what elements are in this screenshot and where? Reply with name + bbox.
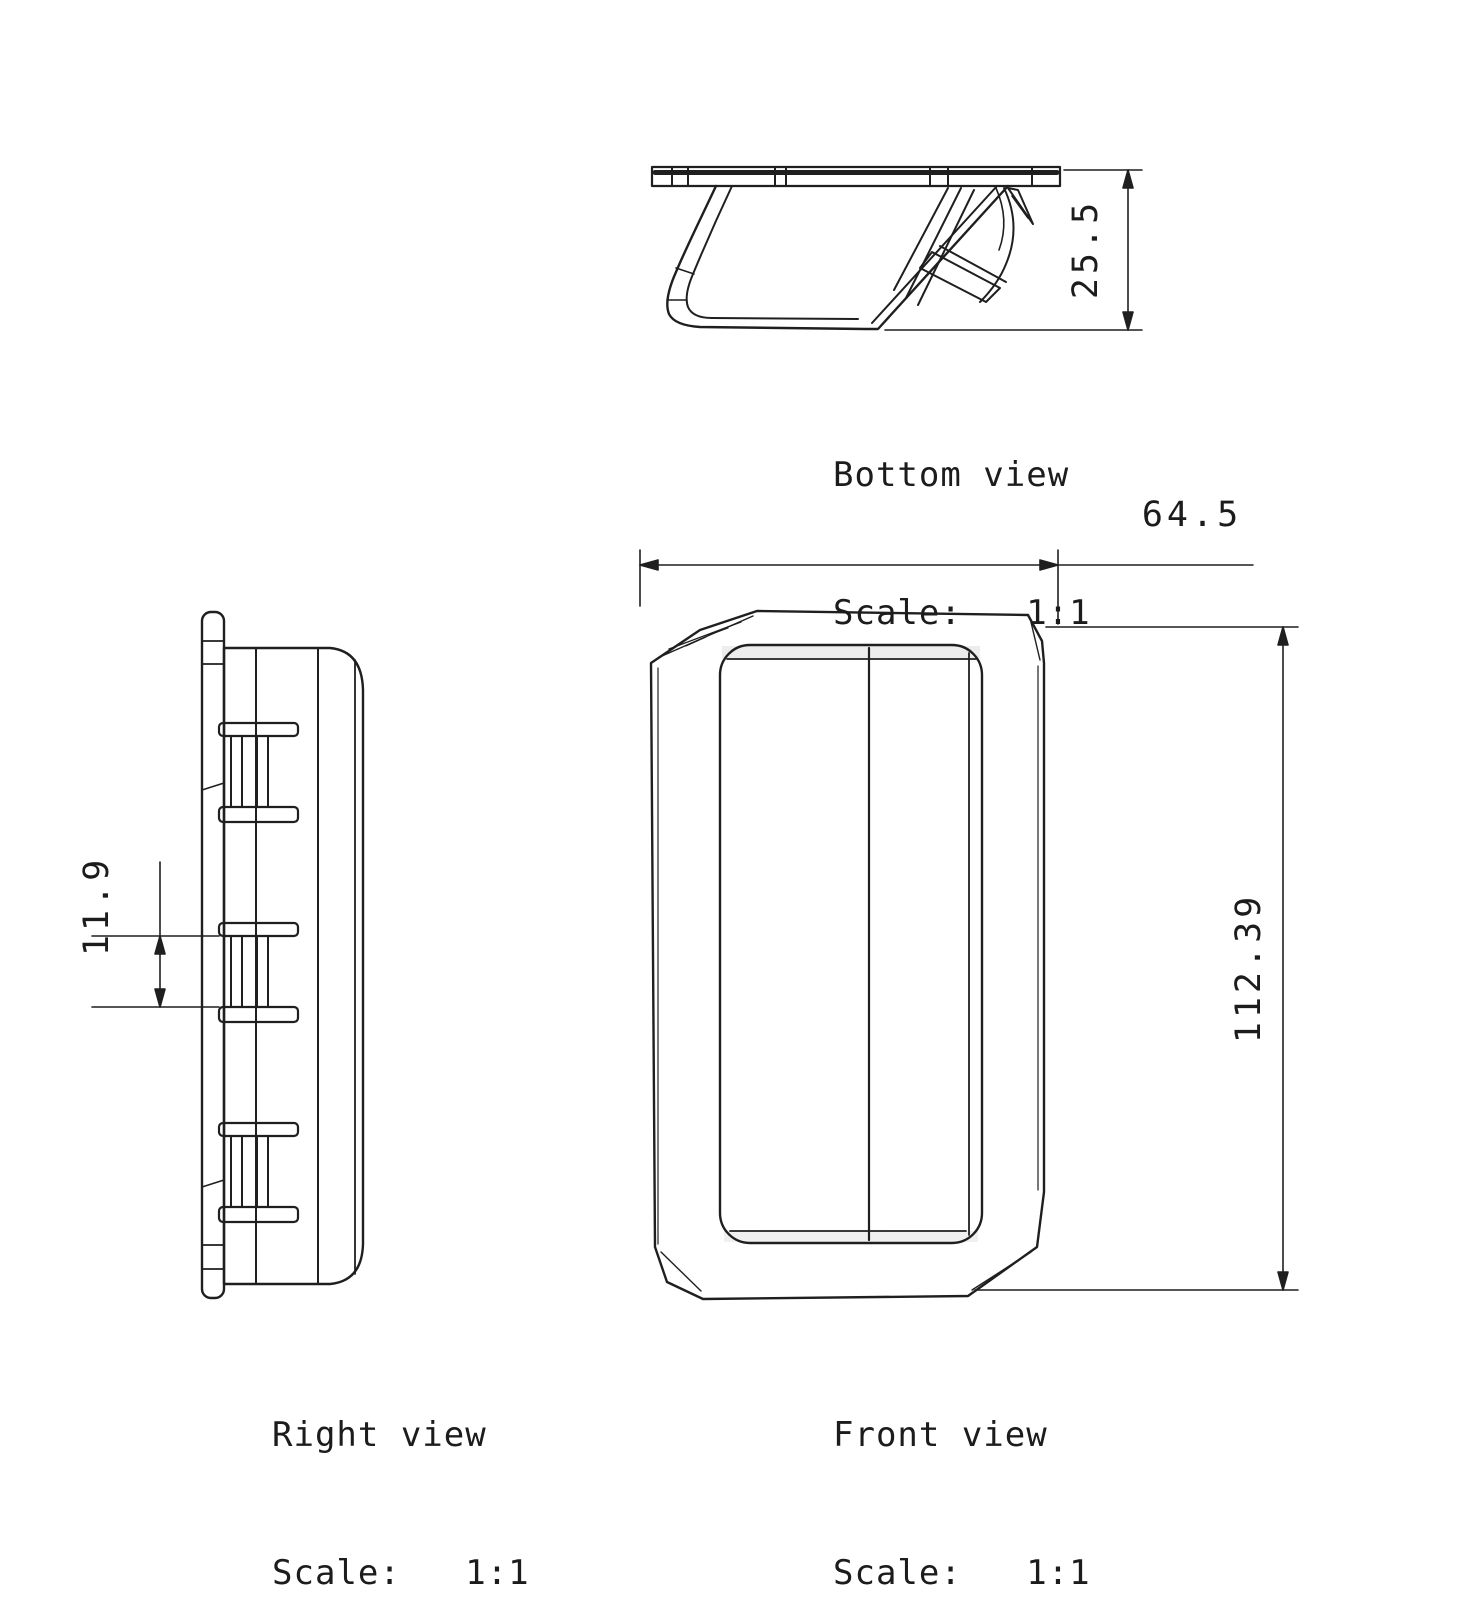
- right-view-scale: Scale: 1:1: [272, 1550, 530, 1596]
- front-view-title: Front view: [833, 1412, 1091, 1458]
- front-view-caption: Front view Scale: 1:1: [833, 1320, 1091, 1616]
- right-view-title: Right view: [272, 1412, 530, 1458]
- bottom-view-title: Bottom view: [833, 452, 1091, 498]
- dim-height-label: 112.39: [1229, 893, 1269, 1043]
- engineering-drawing-sheet: 25.5 64.5 112.39 11.9 Bottom view Scale:…: [0, 0, 1472, 1616]
- front-view-scale: Scale: 1:1: [833, 1550, 1091, 1596]
- bottom-view-drawing: [652, 167, 1060, 329]
- clip-feature: [219, 923, 298, 1022]
- clip-feature: [219, 1123, 298, 1222]
- right-view-drawing: [202, 612, 363, 1298]
- dim-width-label: 64.5: [1142, 495, 1242, 535]
- dim-clip-pitch-label: 11.9: [77, 856, 117, 956]
- bottom-view-caption: Bottom view Scale: 1:1: [833, 360, 1091, 728]
- dim-depth-label: 25.5: [1066, 199, 1106, 299]
- drawing-canvas: [0, 0, 1472, 1616]
- bottom-view-scale: Scale: 1:1: [833, 590, 1091, 636]
- right-view-caption: Right view Scale: 1:1: [272, 1320, 530, 1616]
- clip-feature: [219, 723, 298, 822]
